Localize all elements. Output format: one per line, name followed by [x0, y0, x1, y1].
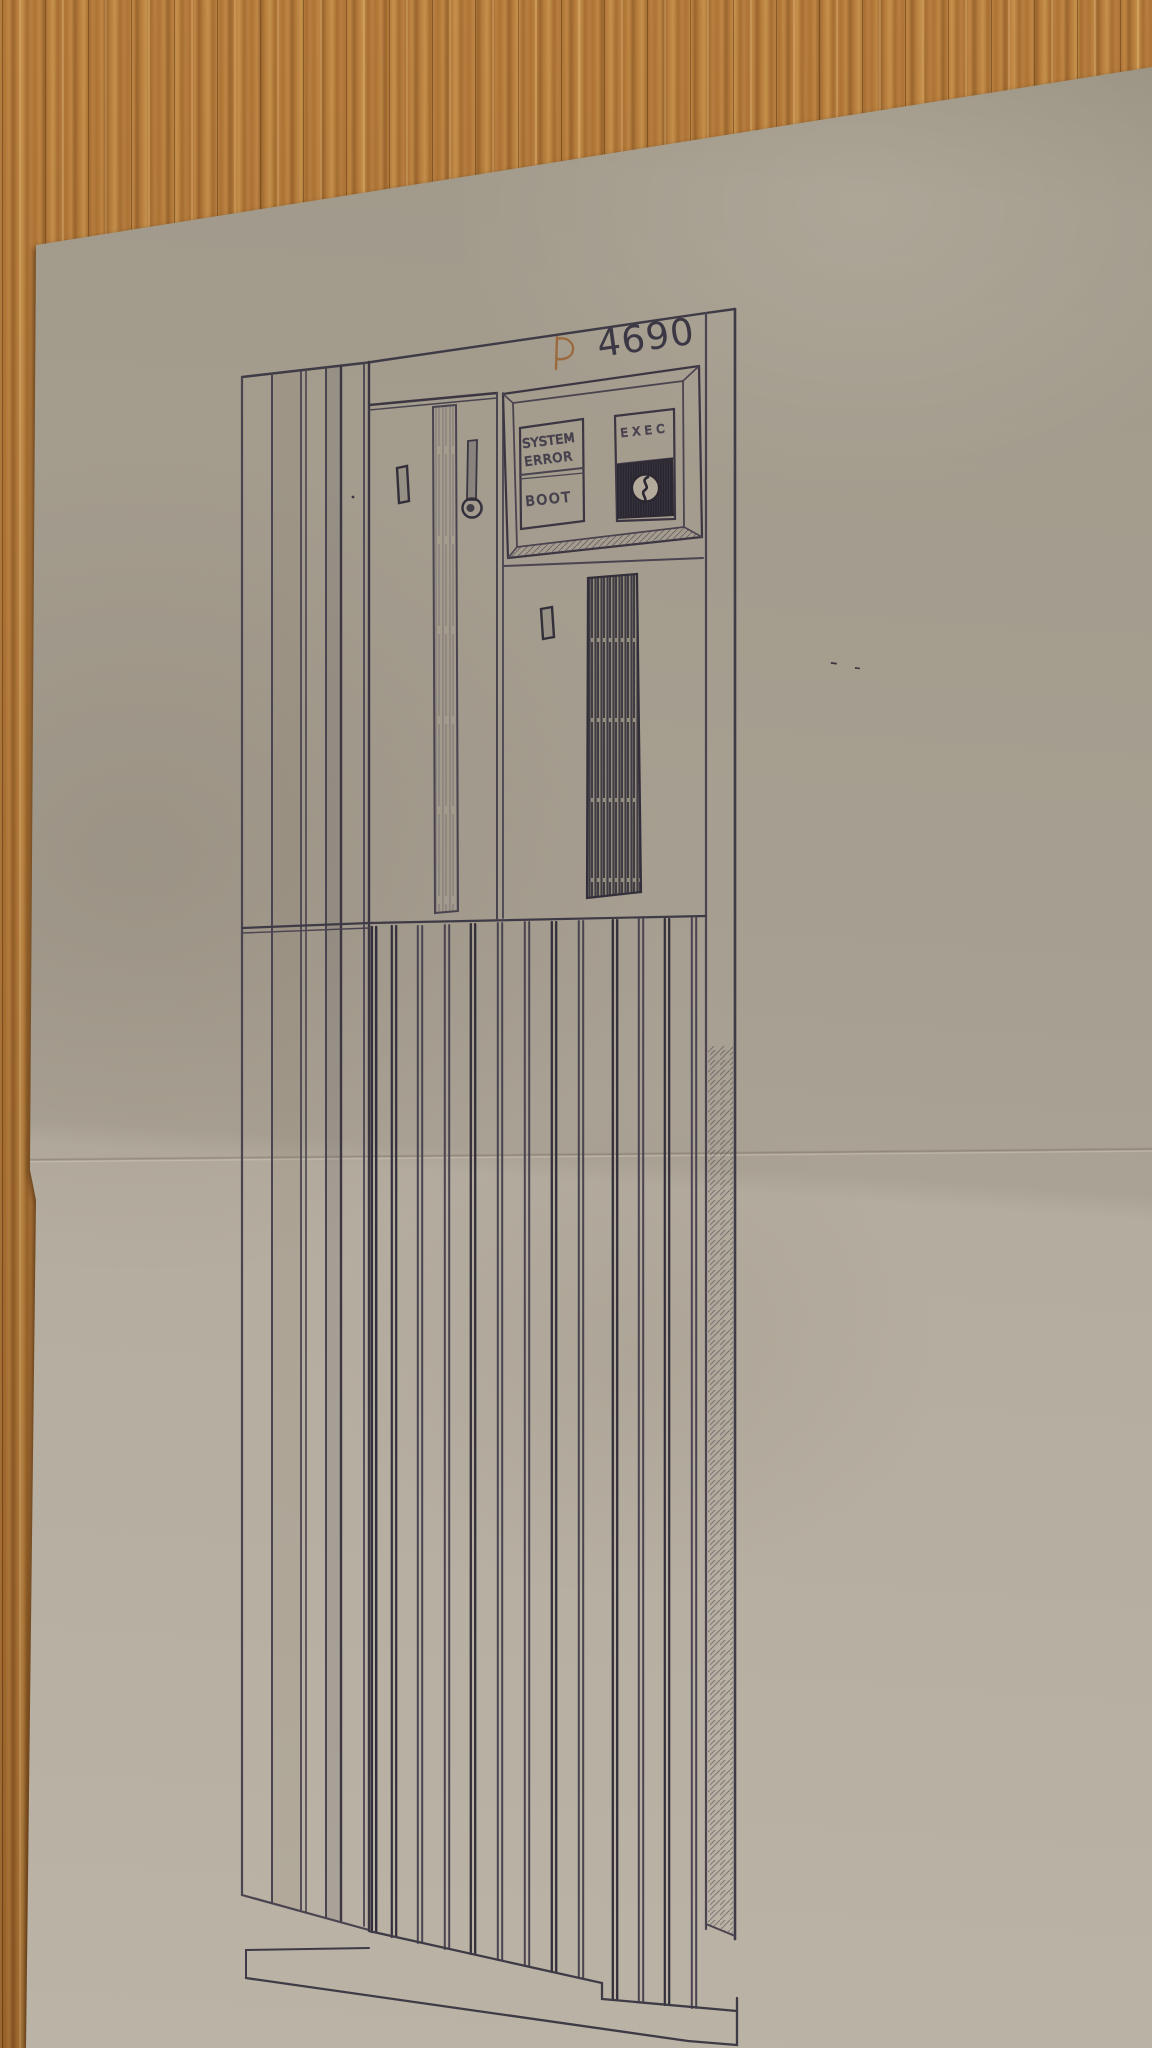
boot-label: BOOT: [525, 489, 573, 510]
grille-bar: [471, 924, 475, 1954]
base-plinth: [246, 1931, 737, 2045]
grille-bar: [665, 919, 669, 2005]
key-shaft: [467, 440, 477, 500]
grille-bar: [579, 921, 583, 1978]
grille-bar: [639, 919, 643, 2002]
vent-shaded-band-2: [326, 366, 341, 1922]
grille-bar: [418, 926, 422, 1943]
plinth-bottom-edge: [246, 1978, 737, 2045]
left-vent-panel: [242, 366, 369, 1930]
lower-keyhole-slot: [541, 607, 554, 639]
key-head-center: [467, 504, 475, 512]
status-label-line2: ERROR: [524, 448, 574, 469]
lower-grille: [372, 918, 696, 2008]
cabinet-outline: [242, 309, 735, 1939]
photo-of-sketch-on-table: SYSTEM ERROR BOOT EXEC: [0, 0, 1152, 2048]
grille-bottom-edge: [369, 1931, 737, 2011]
control-panel: SYSTEM ERROR BOOT EXEC: [503, 366, 702, 558]
exec-label: EXEC: [620, 421, 670, 440]
model-number-label: 4690: [594, 310, 697, 366]
key-drawing: [463, 440, 483, 518]
plinth-left-foot: [246, 1948, 369, 1978]
brand-logo-glyph: [556, 337, 573, 369]
grille-bar: [498, 923, 502, 1960]
door-keyhole-slot: [397, 466, 409, 503]
door-top-edge: [369, 393, 497, 405]
brand-logo-loop: [557, 338, 573, 359]
pencil-speck: [855, 667, 860, 669]
pencil-speck: [352, 496, 355, 499]
lower-panel-top-edge: [504, 558, 703, 566]
lower-right-panel: [504, 558, 703, 898]
status-box: SYSTEM ERROR BOOT: [520, 419, 584, 529]
upper-left-door: [369, 393, 503, 919]
grille-bar: [613, 920, 617, 1999]
grille-bar: [392, 926, 396, 1937]
mid-divider: [242, 916, 706, 928]
vent-shaded-band-1: [273, 371, 301, 1911]
side-face-hatching: [708, 1046, 733, 1934]
exec-box: EXEC: [615, 409, 675, 521]
grille-bar: [692, 918, 696, 2008]
grille-bar: [552, 922, 556, 1972]
grille-bar: [445, 925, 449, 1949]
door-vent-stripe: [433, 405, 458, 913]
pencil-speck: [831, 662, 837, 665]
grille-bar: [525, 922, 529, 1966]
lower-vent-stripe: [587, 574, 641, 898]
brand-logo-stem: [556, 337, 557, 369]
grille-bar: [372, 927, 376, 1932]
pencil-sketch-computer-cabinet: SYSTEM ERROR BOOT EXEC: [0, 0, 1152, 2048]
panel-bevel-hatching: [508, 527, 702, 558]
